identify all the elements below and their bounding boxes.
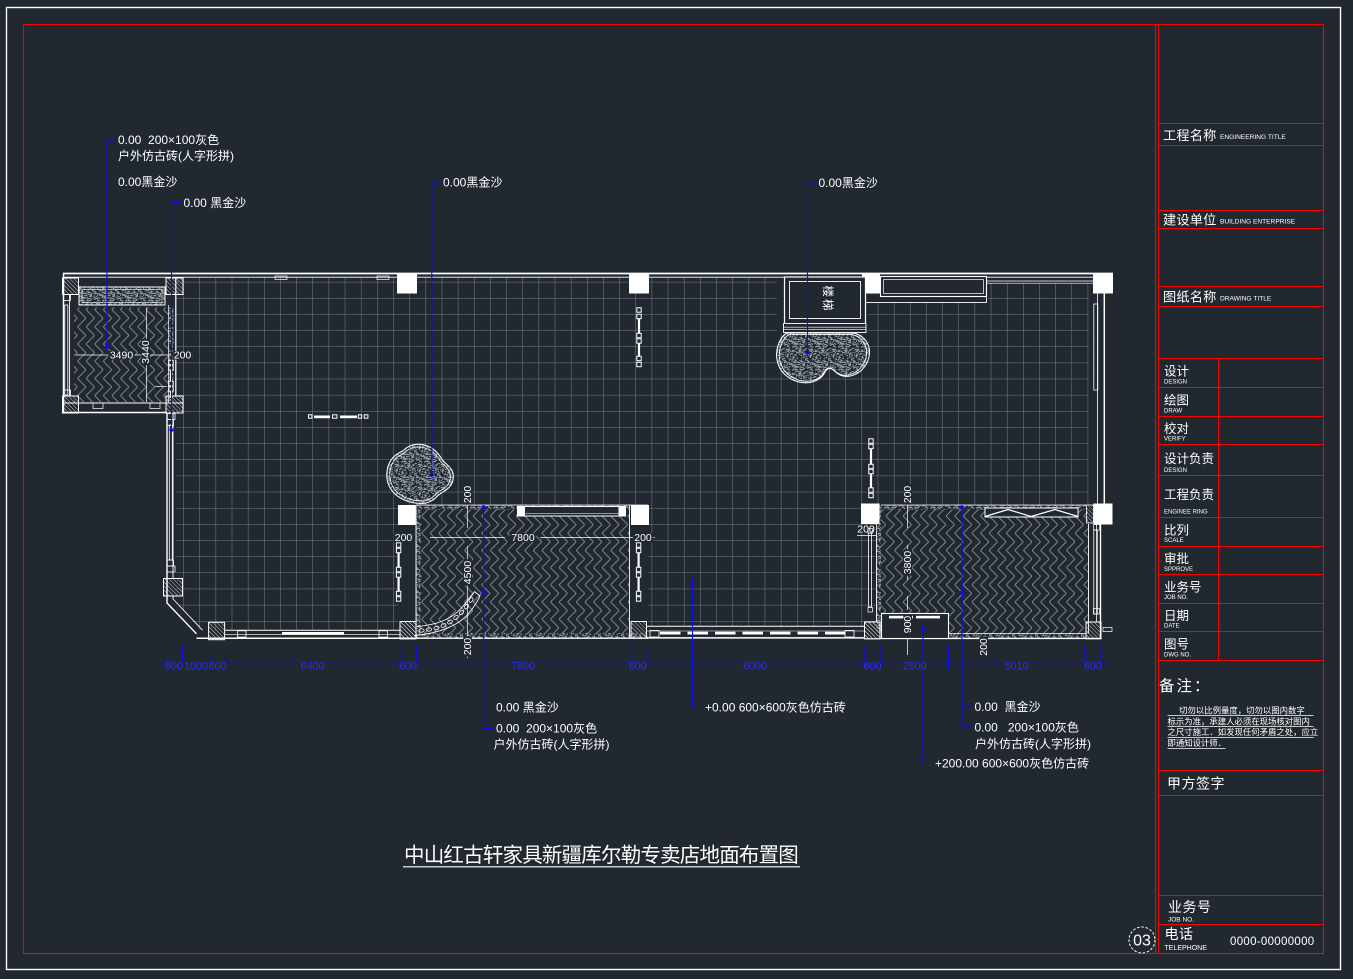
svg-text:DATE: DATE — [1164, 624, 1180, 630]
svg-text:+200.00 600×600灰色仿古砖: +200.00 600×600灰色仿古砖 — [935, 756, 1089, 771]
svg-text:900: 900 — [902, 616, 914, 634]
svg-text:1000: 1000 — [184, 661, 208, 673]
svg-text:600: 600 — [629, 661, 647, 673]
svg-text:审批: 审批 — [1164, 551, 1189, 566]
svg-text:业务号: 业务号 — [1168, 899, 1212, 915]
svg-text:JOB NO.: JOB NO. — [1168, 917, 1194, 924]
svg-text:DRAW: DRAW — [1164, 408, 1182, 414]
svg-text:7800: 7800 — [511, 532, 535, 544]
svg-text:户外仿古砖(人字形拼): 户外仿古砖(人字形拼) — [118, 148, 234, 163]
svg-text:图号: 图号 — [1164, 638, 1189, 652]
svg-text:7800: 7800 — [511, 661, 535, 673]
svg-text:BUILDING ENTERPRISE: BUILDING ENTERPRISE — [1220, 219, 1296, 226]
svg-text:03: 03 — [1133, 933, 1151, 950]
svg-text:0.00 黑金沙: 0.00 黑金沙 — [975, 699, 1041, 714]
svg-text:ENGINEE RING: ENGINEE RING — [1164, 510, 1208, 516]
svg-text:业务号: 业务号 — [1164, 580, 1202, 595]
svg-text:0.00 黑金沙: 0.00 黑金沙 — [184, 195, 247, 210]
svg-text:户外仿古砖(人字形拼): 户外仿古砖(人字形拼) — [975, 736, 1091, 751]
svg-text:图纸名称: 图纸名称 — [1163, 290, 1217, 305]
svg-text:5010: 5010 — [1005, 661, 1029, 673]
svg-text:2500: 2500 — [903, 661, 927, 673]
svg-text:VERIFY: VERIFY — [1164, 437, 1186, 443]
svg-text:0.00黑金沙: 0.00黑金沙 — [443, 175, 502, 190]
svg-text:0.00 200×100灰色: 0.00 200×100灰色 — [118, 133, 219, 147]
svg-text:4500: 4500 — [462, 561, 474, 585]
svg-text:建设单位: 建设单位 — [1163, 213, 1217, 228]
svg-text:电话: 电话 — [1165, 926, 1194, 942]
svg-text:200: 200 — [978, 638, 990, 656]
svg-text:600: 600 — [399, 661, 417, 673]
svg-text:切勿以比例量度，切勿以图内数字: 切勿以比例量度，切勿以图内数字 — [1168, 706, 1305, 716]
svg-text:200: 200 — [395, 532, 413, 544]
svg-text:工程负责: 工程负责 — [1164, 487, 1214, 502]
svg-text:设计: 设计 — [1164, 363, 1189, 378]
svg-text:200: 200 — [634, 532, 652, 544]
svg-text:200: 200 — [462, 638, 474, 656]
svg-text:0.00黑金沙: 0.00黑金沙 — [819, 175, 878, 190]
svg-text:600: 600 — [165, 661, 183, 673]
svg-text:3440: 3440 — [140, 340, 152, 364]
svg-text:比列: 比列 — [1164, 523, 1189, 537]
svg-text:绘图: 绘图 — [1164, 393, 1189, 408]
svg-text:DESIGN: DESIGN — [1164, 380, 1187, 386]
svg-text:6400: 6400 — [301, 661, 325, 673]
svg-text:备注：: 备注： — [1159, 677, 1212, 695]
svg-text:600: 600 — [863, 661, 881, 673]
svg-text:600: 600 — [1084, 661, 1102, 673]
svg-text:标示为准，承建人必须在现场核对图内: 标示为准，承建人必须在现场核对图内 — [1168, 716, 1310, 726]
svg-text:户外仿古砖(人字形拼): 户外仿古砖(人字形拼) — [494, 737, 610, 752]
svg-text:DWG NO.: DWG NO. — [1164, 652, 1191, 658]
svg-text:ENGINEERING TITLE: ENGINEERING TITLE — [1220, 134, 1286, 141]
svg-text:校对: 校对 — [1164, 421, 1189, 436]
svg-text:SCALE: SCALE — [1164, 538, 1184, 544]
svg-text:中山红古轩家具新疆库尔勒专卖店地面布置图: 中山红古轩家具新疆库尔勒专卖店地面布置图 — [404, 844, 798, 867]
svg-text:工程名称: 工程名称 — [1163, 128, 1217, 143]
svg-text:200: 200 — [462, 486, 474, 504]
svg-text:甲方签字: 甲方签字 — [1167, 776, 1225, 792]
svg-text:TELEPHONE: TELEPHONE — [1165, 945, 1208, 952]
svg-text:6000: 6000 — [743, 661, 767, 673]
svg-text:0.00 200×100灰色: 0.00 200×100灰色 — [496, 722, 597, 736]
svg-text:日期: 日期 — [1164, 609, 1189, 623]
svg-text:0.00 200×100灰色: 0.00 200×100灰色 — [975, 721, 1079, 735]
svg-text:0000-00000000: 0000-00000000 — [1230, 936, 1314, 948]
svg-text:DRAWING TITLE: DRAWING TITLE — [1220, 296, 1272, 303]
svg-text:JOB NO.: JOB NO. — [1164, 595, 1188, 601]
svg-text:0.00 黑金沙: 0.00 黑金沙 — [496, 700, 559, 715]
svg-text:之尺寸施工．如发现任何矛盾之处，应立: 之尺寸施工．如发现任何矛盾之处，应立 — [1168, 727, 1319, 737]
svg-text:SPPROVE: SPPROVE — [1164, 567, 1193, 573]
svg-text:200: 200 — [902, 486, 914, 504]
svg-text:3800: 3800 — [902, 551, 914, 575]
svg-text:0.00黑金沙: 0.00黑金沙 — [118, 174, 177, 189]
svg-text:楼梯: 楼梯 — [821, 286, 835, 313]
svg-text:+0.00 600×600灰色仿古砖: +0.00 600×600灰色仿古砖 — [705, 700, 846, 715]
svg-text:即通知设计师．: 即通知设计师． — [1168, 738, 1227, 748]
svg-text:600: 600 — [209, 661, 227, 673]
svg-text:设计负责: 设计负责 — [1164, 451, 1214, 466]
svg-text:3490: 3490 — [110, 350, 134, 362]
svg-text:DESIGN: DESIGN — [1164, 468, 1187, 474]
svg-text:200: 200 — [174, 350, 192, 362]
